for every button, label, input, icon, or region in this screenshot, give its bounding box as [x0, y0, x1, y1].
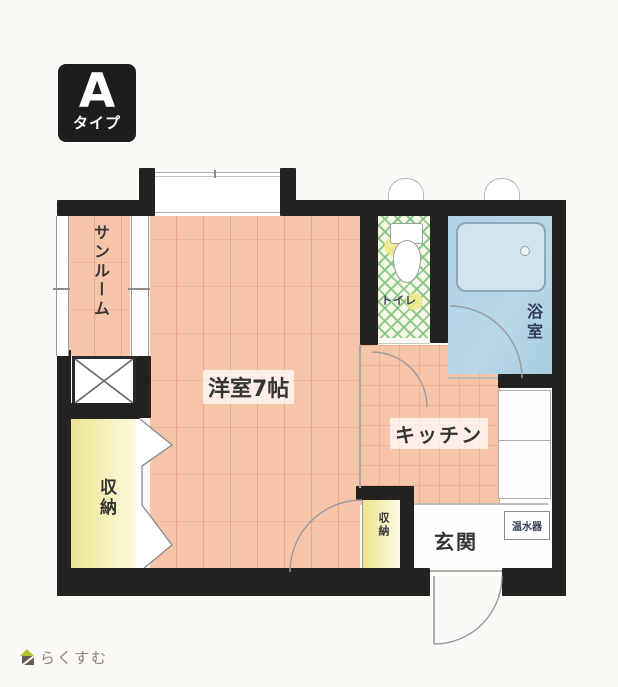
wall-xbox-right-stub [136, 356, 151, 418]
kitchen-room-divider [359, 345, 361, 488]
bathtub [456, 222, 546, 292]
storage-bifold-doors [136, 419, 178, 568]
entrance-label: 玄関 [434, 526, 478, 555]
type-badge: A タイプ [58, 64, 136, 142]
wall-under-xbox [57, 403, 140, 419]
kitchen-counter-lower [498, 440, 551, 499]
sunroom-window-left-tick [53, 288, 70, 290]
wall-bath-bottom [498, 374, 566, 388]
toilet-hall-line [378, 343, 430, 344]
sunroom-window-right [131, 216, 149, 356]
entrance-kitchen-divider [414, 503, 548, 505]
kitchen-label: キッチン [390, 418, 488, 449]
wall-top-left [57, 200, 147, 216]
toilet-label: トイレ [381, 292, 417, 308]
wall-toilet-bath-divider [430, 213, 448, 343]
wall-right [552, 200, 566, 596]
bathtub-drain [520, 246, 530, 256]
sunroom-window-left [56, 216, 69, 356]
wall-top-main [290, 200, 566, 216]
wall-small-storage-right [400, 486, 414, 572]
bath-label: 浴室 [521, 303, 545, 343]
window-bay-tick [214, 170, 216, 178]
window-bay-sill-line [152, 212, 282, 213]
kitchen-counter-upper [498, 390, 551, 442]
sunroom-window-right-tick [128, 288, 150, 290]
house-icon [20, 649, 35, 665]
type-badge-label: タイプ [58, 112, 136, 133]
footer-logo-text: らくすむ [40, 647, 108, 668]
water-heater-label: 温水器 [512, 518, 542, 533]
sunroom-label: サンルーム [88, 224, 112, 356]
window-bay [152, 172, 282, 215]
wall-bottom-left [57, 568, 430, 596]
crossed-box [72, 356, 136, 406]
wall-baystub-left [139, 168, 155, 216]
small-storage-label: 収納 [375, 512, 391, 538]
water-heater-box: 温水器 [504, 511, 550, 540]
footer-logo: らくすむ [20, 646, 108, 668]
wall-bottom-right [502, 568, 566, 596]
storage-label: 収納 [94, 478, 119, 518]
entrance-door-arc [434, 576, 502, 644]
wall-room-toilet-divider [360, 200, 378, 345]
wall-left-lower [57, 350, 71, 596]
entrance-doorway-line [430, 570, 502, 572]
window-bay-inner-line [152, 176, 282, 177]
western-room-label: 洋室7帖 [203, 370, 294, 404]
bath-door-threshold [448, 377, 498, 379]
floorplan-page: { "type_badge": { "letter": "A", "label"… [0, 0, 618, 687]
